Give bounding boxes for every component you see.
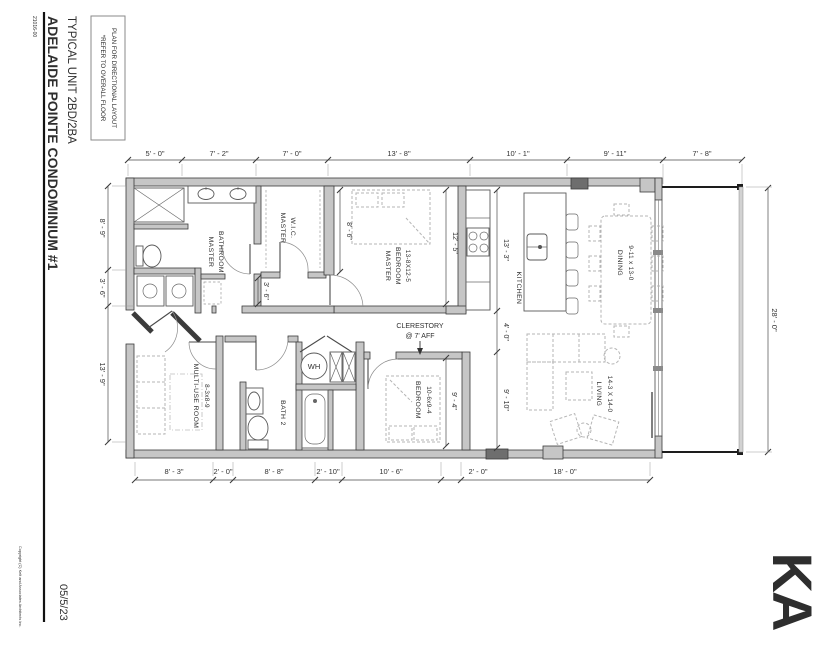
exterior-walls — [126, 178, 662, 459]
firm-logo: KA — [761, 553, 824, 630]
label-mbr-2: BEDROOM — [394, 247, 401, 285]
bath2-fixtures — [246, 388, 328, 449]
label-multiuse-size: 8-3x8-9 — [203, 384, 210, 408]
label-multiuse: MULTI-USE ROOM — [192, 364, 199, 429]
label-wic-2: W.I.C. — [289, 218, 296, 239]
dim-top-4: 10' - 1" — [506, 149, 530, 158]
dim-living-w: 9' - 10" — [502, 389, 509, 411]
label-dining: DINING — [616, 250, 623, 276]
dim-mbr-depth: 12' - 5" — [451, 232, 458, 254]
dim-top-3: 13' - 8" — [387, 149, 411, 158]
laundry-closet — [137, 276, 193, 306]
dim-right: 28' - 0" — [770, 308, 779, 332]
label-wic-1: MASTER — [279, 213, 286, 244]
bottom-dimensions: 8' - 3" 2' - 0" 8' - 8" 2' - 10" 10' - 6… — [132, 462, 653, 483]
sheet-date: 05/5/23 — [57, 584, 69, 621]
dim-bottom-3: 2' - 10" — [316, 467, 340, 476]
dim-kitchen-len: 13' - 3" — [502, 239, 509, 261]
dining-furniture — [589, 204, 663, 337]
copyright-text: Copyright (C) Kelt and Associates Archit… — [18, 546, 22, 627]
dim-left-1: 3' - 6" — [98, 278, 107, 297]
clerestory-line-1: CLERESTORY — [396, 323, 444, 330]
label-bath2: BATH 2 — [279, 400, 286, 426]
label-living: LIVING — [595, 382, 602, 407]
label-mbr-1: MASTER — [384, 251, 391, 282]
dim-bottom-6: 18' - 0" — [553, 467, 577, 476]
balcony — [662, 184, 743, 455]
label-water-heater: WH — [308, 362, 321, 371]
dim-bottom-4: 10' - 6" — [379, 467, 403, 476]
sheet-title: TYPICAL UNIT 2BD/2BA — [65, 16, 77, 144]
directional-note: *REFER TO OVERALL FLOOR PLAN FOR DIRECTI… — [91, 16, 125, 140]
dim-pass: 4' - 0" — [502, 323, 509, 341]
label-living-size: 14-3 X 14-0 — [606, 376, 613, 413]
label-mbr-size: 13-8X12-5 — [404, 250, 411, 283]
dim-top-6: 7' - 8" — [692, 149, 711, 158]
right-dimension: 28' - 0" — [746, 185, 779, 455]
dim-bottom-0: 8' - 3" — [164, 467, 183, 476]
dim-bottom-5: 2' - 0" — [468, 467, 487, 476]
dim-top-1: 7' - 2" — [209, 149, 228, 158]
linen-closet — [204, 282, 221, 304]
dim-bed2-depth: 9' - 4" — [450, 392, 457, 410]
label-kitchen: KITCHEN — [515, 272, 522, 305]
dim-hall-width: 3' - 6" — [262, 282, 269, 300]
project-number: 21016-00 — [31, 16, 37, 37]
dim-wic-depth: 8' - 6" — [345, 222, 352, 240]
clerestory-line-2: @ 7' AFF — [405, 333, 434, 340]
dim-top-5: 9' - 11" — [604, 149, 627, 158]
note-line-2: PLAN FOR DIRECTIONAL LAYOUT — [110, 28, 117, 128]
dim-left-0: 8' - 9" — [98, 218, 107, 237]
dim-left-2: 13' - 9" — [98, 362, 107, 386]
label-master-bath-1: MASTER — [207, 237, 214, 268]
label-dining-size: 9-11 x 13-0 — [627, 245, 634, 280]
drawing-sheet: 21016-00 ADELAIDE POINTE CONDOMINIUM #1 … — [0, 0, 840, 649]
label-bedroom-size: 10-6x9-4 — [425, 386, 432, 414]
note-line-1: *REFER TO OVERALL FLOOR — [99, 35, 106, 122]
dim-bottom-1: 2' - 0" — [213, 467, 232, 476]
master-bedroom-furniture — [352, 190, 430, 244]
label-bedroom: BEDROOM — [414, 381, 421, 419]
clerestory-note: CLERESTORY @ 7' AFF — [396, 323, 444, 355]
window-wall — [652, 200, 663, 438]
dim-bottom-2: 8' - 8" — [264, 467, 283, 476]
dim-top-2: 7' - 0" — [282, 149, 301, 158]
dim-top-0: 5' - 0" — [145, 149, 164, 158]
label-master-bath-2: BATHROOM — [217, 231, 224, 273]
project-name: ADELAIDE POINTE CONDOMINIUM #1 — [45, 16, 61, 271]
floor-plan-drawing: 21016-00 ADELAIDE POINTE CONDOMINIUM #1 … — [0, 0, 840, 649]
